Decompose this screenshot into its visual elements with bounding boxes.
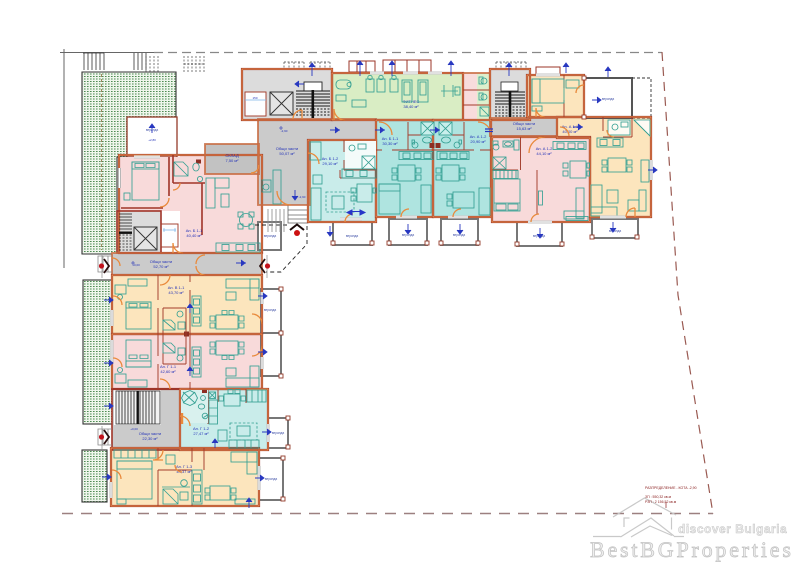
- svg-text:веранда: веранда: [453, 233, 466, 237]
- svg-text:веранда: веранда: [346, 234, 359, 238]
- svg-text:-2,90: -2,90: [299, 195, 306, 199]
- svg-text:+0,00: +0,00: [130, 427, 138, 431]
- svg-text:+0,00: +0,00: [132, 263, 140, 267]
- svg-text:BestBGProperties: BestBGProperties: [590, 537, 794, 562]
- svg-text:веранда: веранда: [264, 308, 277, 312]
- svg-text:ЗП : 550,32 кв.м: ЗП : 550,32 кв.м: [645, 495, 672, 499]
- svg-text:-2,90: -2,90: [281, 129, 288, 133]
- svg-text:27,47 м²: 27,47 м²: [193, 431, 209, 436]
- svg-text:веранда: веранда: [272, 431, 285, 435]
- svg-text:50,07 м²: 50,07 м²: [279, 151, 295, 156]
- svg-text:РЗП : 2 156,52 кв.м: РЗП : 2 156,52 кв.м: [645, 500, 677, 504]
- svg-text:42,60 м²: 42,60 м²: [160, 369, 176, 374]
- svg-text:20,90 м²: 20,90 м²: [470, 139, 486, 144]
- svg-text:22,30 м²: 22,30 м²: [142, 436, 158, 441]
- svg-text:веранда: веранда: [264, 234, 277, 238]
- svg-text:29,10 м²: 29,10 м²: [322, 161, 338, 166]
- svg-text:40,00 м²: 40,00 м²: [562, 129, 578, 134]
- svg-text:40,40 м²: 40,40 м²: [186, 233, 202, 238]
- svg-text:30,30 м²: 30,30 м²: [382, 141, 398, 146]
- svg-text:15,63 м²: 15,63 м²: [516, 126, 532, 131]
- svg-text:7,50 м²: 7,50 м²: [226, 158, 240, 163]
- svg-text:43,70 м²: 43,70 м²: [168, 290, 184, 295]
- svg-text:52,70 м²: 52,70 м²: [153, 264, 169, 269]
- svg-text:+2,80: +2,80: [148, 138, 156, 142]
- svg-text:веранда: веранда: [602, 97, 615, 101]
- svg-text:150: 150: [252, 96, 257, 100]
- svg-text:веранда: веранда: [265, 477, 278, 481]
- svg-text:discover Bulgaria: discover Bulgaria: [678, 522, 787, 536]
- svg-text:44,10 м²: 44,10 м²: [536, 151, 552, 156]
- svg-text:38,40 м²: 38,40 м²: [403, 104, 419, 109]
- svg-text:РАЗПРЕДЕЛЕНИЕ - КОТА -2,90: РАЗПРЕДЕЛЕНИЕ - КОТА -2,90: [645, 486, 697, 490]
